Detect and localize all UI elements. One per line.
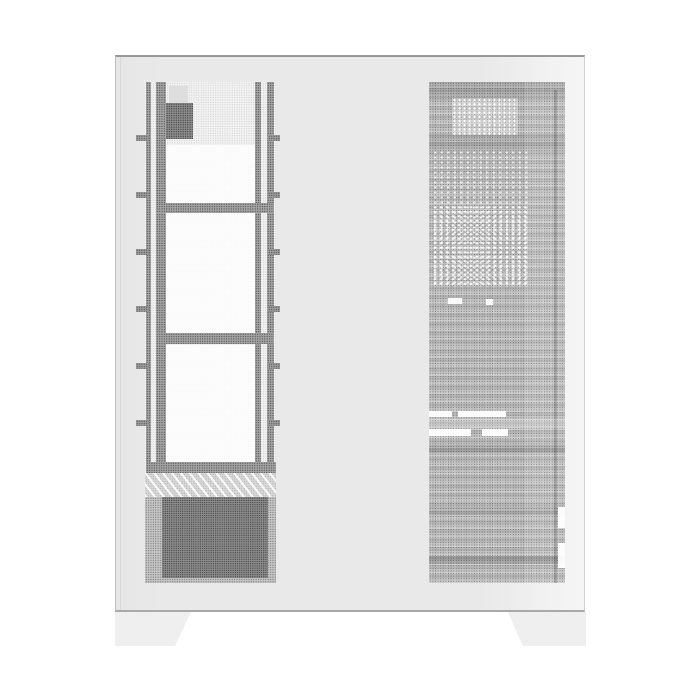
cable-area-speckle-strong — [432, 205, 528, 285]
psu-unit — [162, 497, 268, 578]
drive-slot — [482, 429, 508, 436]
mounting-tab — [136, 306, 149, 312]
mounting-tab — [268, 363, 280, 369]
bracket-crossbar — [156, 333, 274, 344]
mounting-tab — [268, 420, 280, 426]
mounting-tab — [268, 249, 280, 255]
fan-mount-plate-2 — [166, 213, 255, 333]
mounting-tab — [136, 363, 149, 369]
bracket-crossbar — [146, 462, 276, 473]
bracket-rail — [255, 82, 261, 473]
cutout-dash — [486, 299, 493, 305]
cutout-dash — [448, 298, 462, 304]
drive-slot — [429, 429, 471, 436]
mounting-tab — [268, 192, 280, 198]
dark-stripe — [429, 556, 565, 564]
rear-fan-hub — [452, 98, 518, 135]
panel-clip — [558, 543, 565, 568]
io-module-top — [169, 86, 188, 103]
mounting-tab — [136, 249, 149, 255]
panel-seam — [120, 57, 121, 610]
side-mesh-vent — [145, 82, 276, 583]
dark-stripe — [429, 445, 565, 453]
case-foot-right — [508, 612, 586, 646]
panel-clip — [558, 507, 565, 528]
case-foot-left — [115, 612, 191, 646]
mounting-tab — [268, 306, 280, 312]
light-band — [429, 419, 565, 428]
mounting-tab — [136, 192, 149, 198]
drive-slot — [458, 411, 506, 417]
fan-mount-plate-1 — [166, 145, 255, 203]
mounting-tab — [136, 420, 149, 426]
fan-mount-plate-3 — [166, 345, 255, 462]
io-module — [166, 103, 193, 139]
mounting-tab — [136, 135, 149, 141]
product-photo — [0, 0, 700, 700]
bracket-rail — [156, 82, 166, 473]
bracket-crossbar — [156, 203, 274, 213]
psu-vent-hatch — [145, 473, 276, 497]
mounting-tab — [268, 135, 280, 141]
drive-slot — [429, 411, 452, 417]
rear-mesh-panel — [429, 82, 565, 583]
dark-stripe — [429, 507, 565, 514]
